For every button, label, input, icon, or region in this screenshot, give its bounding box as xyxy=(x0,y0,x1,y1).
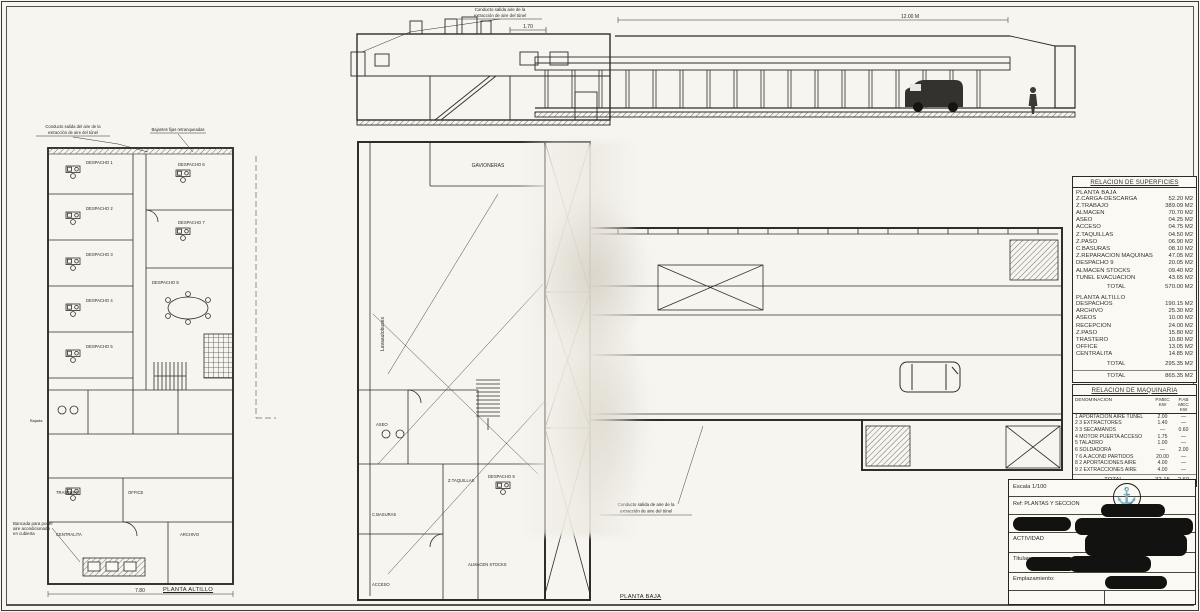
surfaces-section-heading: PLANTA BAJA xyxy=(1073,188,1196,196)
room-name: Z.REPARACION MAQUINAS xyxy=(1076,253,1153,260)
room-area: 24.00 M2 xyxy=(1168,323,1193,330)
room-area: 70.70 M2 xyxy=(1168,210,1193,217)
drawing-sheet: 1.70 12.00 M Conducto salida aire de la … xyxy=(0,0,1200,612)
machine-kw2: — xyxy=(1173,467,1194,474)
elevation-height-dim: 1.70 xyxy=(523,24,533,30)
room-area: 20.05 M2 xyxy=(1168,260,1193,267)
room-area: 25.30 M2 xyxy=(1168,308,1193,315)
surfaces-row: ACCESO04.75 M2 xyxy=(1073,224,1196,231)
center-plan-duct-note: Conducto salida de aire de la xyxy=(618,502,675,507)
room-name: RECEPCION xyxy=(1076,323,1111,330)
redaction-blob xyxy=(1105,576,1167,589)
redaction-blob xyxy=(1085,534,1187,556)
room-name: Z.PASO xyxy=(1076,330,1097,337)
center-plan-linework xyxy=(358,142,1062,600)
machine-name: 6 SOLDADORA xyxy=(1075,447,1152,454)
surfaces-section-heading: PLANTA ALTILLO xyxy=(1073,293,1196,301)
left-plan-linework xyxy=(36,133,276,597)
machinery-row: 2 3 EXTRACTORES1.40— xyxy=(1073,420,1196,427)
left-plan-duct-note-line2: extracción de aire del túnel xyxy=(48,130,98,135)
surfaces-section-total: TOTAL570.00 M2 xyxy=(1073,282,1196,293)
svg-text:DESPACHO 6: DESPACHO 6 xyxy=(178,162,205,167)
room-name: DESPACHO 9 xyxy=(1076,260,1114,267)
room-name: ASEOS xyxy=(1076,315,1096,322)
room-name: ALMACEN STOCKS xyxy=(1076,268,1130,275)
machine-name: 8 2 APORTACIONES AIRE xyxy=(1075,460,1152,467)
surfaces-row: TUNEL EVACUACION43.65 M2 xyxy=(1073,275,1196,282)
surfaces-table-title: RELACION DE SUPERFICIES xyxy=(1073,177,1196,188)
machinery-col-name: DENOMINACION xyxy=(1075,397,1152,412)
room-area: 52.20 M2 xyxy=(1168,196,1193,203)
machinery-row: 5 TALADRO1.00— xyxy=(1073,440,1196,447)
machine-kw1: 4.00 xyxy=(1152,467,1173,474)
room-area: 15.80 M2 xyxy=(1168,330,1193,337)
surfaces-row: RECEPCION24.00 M2 xyxy=(1073,323,1196,330)
machinery-table-title: RELACION DE MAQUINARIA xyxy=(1073,385,1196,396)
machine-kw2: — xyxy=(1173,460,1194,467)
grand-total-value: 865.35 M2 xyxy=(1165,372,1193,381)
svg-text:DESPACHO 4: DESPACHO 4 xyxy=(86,298,113,303)
title-block-divider xyxy=(1009,496,1195,497)
machine-kw1: 1.40 xyxy=(1152,420,1173,427)
gavioneras-label: GAVIONERAS xyxy=(472,163,505,169)
room-area: 06.90 M2 xyxy=(1168,239,1193,246)
elevation-length-dim: 12.00 M xyxy=(901,14,919,20)
machine-kw2: — xyxy=(1173,454,1194,461)
machinery-row: 9 2 EXTRACCIONES AIRE4.00— xyxy=(1073,467,1196,474)
left-floor-plan: 7.80 Conducto salida del aire de la extr… xyxy=(28,122,278,612)
svg-text:ASEO: ASEO xyxy=(376,422,388,427)
surfaces-row: DESPACHO 920.05 M2 xyxy=(1073,260,1196,267)
center-plan-room-labels: ASEO Z.TAQUILLAS C.BASURAS ACCESO DESPAC… xyxy=(372,422,515,587)
svg-text:OFFICE: OFFICE xyxy=(128,490,144,495)
bancada-note-line3: en cubierta xyxy=(13,531,61,536)
center-floor-plan: GAVIONERAS Lavaautobuses Conducto salida… xyxy=(348,134,1072,606)
room-area: 13.05 M2 xyxy=(1168,344,1193,351)
surfaces-row: TRASTERO10.80 M2 xyxy=(1073,337,1196,344)
machine-kw1: — xyxy=(1152,427,1173,434)
room-area: 04.50 M2 xyxy=(1168,232,1193,239)
room-area: 14.85 M2 xyxy=(1168,351,1193,358)
machine-name: 9 2 EXTRACCIONES AIRE xyxy=(1075,467,1152,474)
machinery-col2: P.AB MECKW xyxy=(1173,397,1194,412)
surfaces-table: RELACION DE SUPERFICIES PLANTA BAJAZ.CAR… xyxy=(1072,176,1197,383)
machine-kw2: 0.60 xyxy=(1173,427,1194,434)
svg-text:ACCESO: ACCESO xyxy=(372,582,390,587)
surfaces-row: Z.REPARACION MAQUINAS47.05 M2 xyxy=(1073,253,1196,260)
machine-name: 1 APORTACION AIRE TUNEL xyxy=(1075,414,1152,421)
elevation-duct-note: Conducto salida aire de la xyxy=(475,7,526,12)
svg-text:DESPACHO 1: DESPACHO 1 xyxy=(86,160,113,165)
machine-name: 3 3 SECAMANOS xyxy=(1075,427,1152,434)
svg-text:DESPACHO 7: DESPACHO 7 xyxy=(178,220,205,225)
title-block-divider xyxy=(1104,590,1105,604)
room-area: 09.40 M2 xyxy=(1168,268,1193,275)
machine-kw1: 2.00 xyxy=(1152,414,1173,421)
room-area: 04.25 M2 xyxy=(1168,217,1193,224)
center-plan-desk xyxy=(496,482,510,494)
scale-label: Escala 1/100 xyxy=(1013,484,1047,490)
room-name: OFFICE xyxy=(1076,344,1098,351)
elevation-drawing: 1.70 12.00 M Conducto salida aire de la … xyxy=(350,4,1080,132)
car-figure xyxy=(900,362,960,392)
room-name: C.BASURAS xyxy=(1076,246,1110,253)
room-name: Z.TRABAJO xyxy=(1076,203,1108,210)
surfaces-row: ALMACEN STOCKS09.40 M2 xyxy=(1073,268,1196,275)
machinery-row: 6 SOLDADORA—2.00 xyxy=(1073,447,1196,454)
surfaces-row: Z.CARGA-DESCARGA52.20 M2 xyxy=(1073,196,1196,203)
machine-name: 2 3 EXTRACTORES xyxy=(1075,420,1152,427)
bancada-note: Bancada para poner aire acondicionado en… xyxy=(13,521,61,536)
machinery-table: RELACION DE MAQUINARIA DENOMINACION P.ME… xyxy=(1072,384,1197,487)
svg-text:DESPACHO 3: DESPACHO 3 xyxy=(86,252,113,257)
machine-kw1: 4.00 xyxy=(1152,460,1173,467)
room-area: 43.65 M2 xyxy=(1168,275,1193,282)
left-plan-room-labels: DESPACHO 1 DESPACHO 2 DESPACHO 3 DESPACH… xyxy=(56,160,205,537)
surfaces-row: ALMACEN70.70 M2 xyxy=(1073,210,1196,217)
room-name: DESPACHOS xyxy=(1076,301,1113,308)
title-block: Escala 1/100 Ref: PLANTAS Y SECCION ACTI… xyxy=(1008,479,1196,605)
svg-text:C.BASURAS: C.BASURAS xyxy=(372,512,396,517)
room-name: Z.TAQUILLAS xyxy=(1076,232,1113,239)
machinery-row: 4 MOTOR PUERTA ACCESO1.75— xyxy=(1073,434,1196,441)
title-block-divider xyxy=(1009,572,1195,573)
svg-text:DESPACHO 2: DESPACHO 2 xyxy=(86,206,113,211)
left-plan-desks xyxy=(66,166,190,500)
redaction-blob xyxy=(1075,518,1193,535)
svg-text:Z.TAQUILLAS: Z.TAQUILLAS xyxy=(448,478,475,483)
surfaces-section-total: TOTAL295.35 M2 xyxy=(1073,359,1196,370)
room-name: ALMACEN xyxy=(1076,210,1104,217)
room-area: 10.00 M2 xyxy=(1168,315,1193,322)
surfaces-grand-total: TOTAL 865.35 M2 xyxy=(1073,370,1196,382)
machine-name: 4 MOTOR PUERTA ACCESO xyxy=(1075,434,1152,441)
room-area: 04.75 M2 xyxy=(1168,224,1193,231)
room-name: TUNEL EVACUACION xyxy=(1076,275,1135,282)
surfaces-row: ASEO04.25 M2 xyxy=(1073,217,1196,224)
room-area: 389.09 M2 xyxy=(1165,203,1193,210)
machine-kw2: — xyxy=(1173,434,1194,441)
machinery-row: 1 APORTACION AIRE TUNEL2.00— xyxy=(1073,414,1196,421)
actividad-label: ACTIVIDAD xyxy=(1013,536,1044,542)
room-name: Z.PASO xyxy=(1076,239,1097,246)
room-area: 10.80 M2 xyxy=(1168,337,1193,344)
room-area: 47.05 M2 xyxy=(1168,253,1193,260)
left-plan-bajantes-note: Bajantes fijas retranqueadas xyxy=(151,127,204,132)
svg-text:TRASTERO: TRASTERO xyxy=(56,490,80,495)
room-name: TRASTERO xyxy=(1076,337,1108,344)
svg-text:DESPACHO 5: DESPACHO 5 xyxy=(86,344,113,349)
person-figure xyxy=(1029,87,1038,114)
room-name: ACCESO xyxy=(1076,224,1101,231)
machine-kw2: — xyxy=(1173,414,1194,421)
machine-kw1: 1.75 xyxy=(1152,434,1173,441)
room-area: 08.10 M2 xyxy=(1168,246,1193,253)
machine-name: 5 TALADRO xyxy=(1075,440,1152,447)
surfaces-row: Z.PASO15.80 M2 xyxy=(1073,330,1196,337)
surfaces-row: ASEOS10.00 M2 xyxy=(1073,315,1196,322)
left-plan-duct-note: Conducto salida del aire de la xyxy=(45,124,101,129)
surfaces-row: ARCHIVO25.30 M2 xyxy=(1073,308,1196,315)
van-figure xyxy=(905,80,963,112)
surfaces-row: OFFICE13.05 M2 xyxy=(1073,344,1196,351)
machine-kw1: 20.00 xyxy=(1152,454,1173,461)
surfaces-row: C.BASURAS08.10 M2 xyxy=(1073,246,1196,253)
center-plan-duct-note-line2: extracción de aire del túnel xyxy=(620,509,673,514)
surfaces-row: Z.TRABAJO389.09 M2 xyxy=(1073,203,1196,210)
left-plan-width-dim: 7.80 xyxy=(135,588,145,594)
machine-name: 7 6 A.ACOND PARTIDOS xyxy=(1075,454,1152,461)
room-name: Z.CARGA-DESCARGA xyxy=(1076,196,1137,203)
redaction-blob xyxy=(1013,517,1071,531)
surfaces-row: CENTRALITA14.85 M2 xyxy=(1073,351,1196,358)
elevation-duct-note-line2: extracción de aire del túnel xyxy=(474,13,527,18)
machinery-row: 3 3 SECAMANOS—0.60 xyxy=(1073,427,1196,434)
machine-kw2: — xyxy=(1173,420,1194,427)
room-area: 190.15 M2 xyxy=(1165,301,1193,308)
redaction-blob xyxy=(1101,504,1165,517)
svg-text:DESPACHO 9: DESPACHO 9 xyxy=(488,474,515,479)
left-plan-bajada-label: Bajada xyxy=(30,418,43,423)
emplazamiento-label: Emplazamiento: xyxy=(1013,576,1055,582)
svg-text:DESPACHO 8: DESPACHO 8 xyxy=(152,280,179,285)
machinery-table-header: DENOMINACION P.MECKW P.AB MECKW xyxy=(1073,396,1196,414)
title-block-divider xyxy=(1009,590,1195,591)
svg-text:ARCHIVO: ARCHIVO xyxy=(180,532,200,537)
elevation-linework xyxy=(351,17,1075,125)
machine-kw2: 2.00 xyxy=(1173,447,1194,454)
machinery-row: 7 6 A.ACOND PARTIDOS20.00— xyxy=(1073,454,1196,461)
surfaces-row: DESPACHOS190.15 M2 xyxy=(1073,301,1196,308)
room-name: CENTRALITA xyxy=(1076,351,1112,358)
machinery-col1: P.MECKW xyxy=(1152,397,1173,412)
machine-kw1: 1.00 xyxy=(1152,440,1173,447)
machine-kw1: — xyxy=(1152,447,1173,454)
machinery-row: 8 2 APORTACIONES AIRE4.00— xyxy=(1073,460,1196,467)
grand-total-label: TOTAL xyxy=(1107,372,1125,381)
room-name: ARCHIVO xyxy=(1076,308,1103,315)
lavaautobuses-label: Lavaautobuses xyxy=(380,317,386,351)
room-name: ASEO xyxy=(1076,217,1092,224)
machine-kw2: — xyxy=(1173,440,1194,447)
center-plan-title: PLANTA BAJA xyxy=(620,594,661,600)
ref-label: Ref: PLANTAS Y SECCION xyxy=(1013,501,1080,507)
surfaces-row: Z.PASO06.90 M2 xyxy=(1073,239,1196,246)
svg-text:ALMACEN STOCKS: ALMACEN STOCKS xyxy=(468,562,507,567)
redaction-blob xyxy=(1069,556,1151,572)
surfaces-row: Z.TAQUILLAS04.50 M2 xyxy=(1073,232,1196,239)
left-plan-title: PLANTA ALTILLO xyxy=(163,587,213,593)
